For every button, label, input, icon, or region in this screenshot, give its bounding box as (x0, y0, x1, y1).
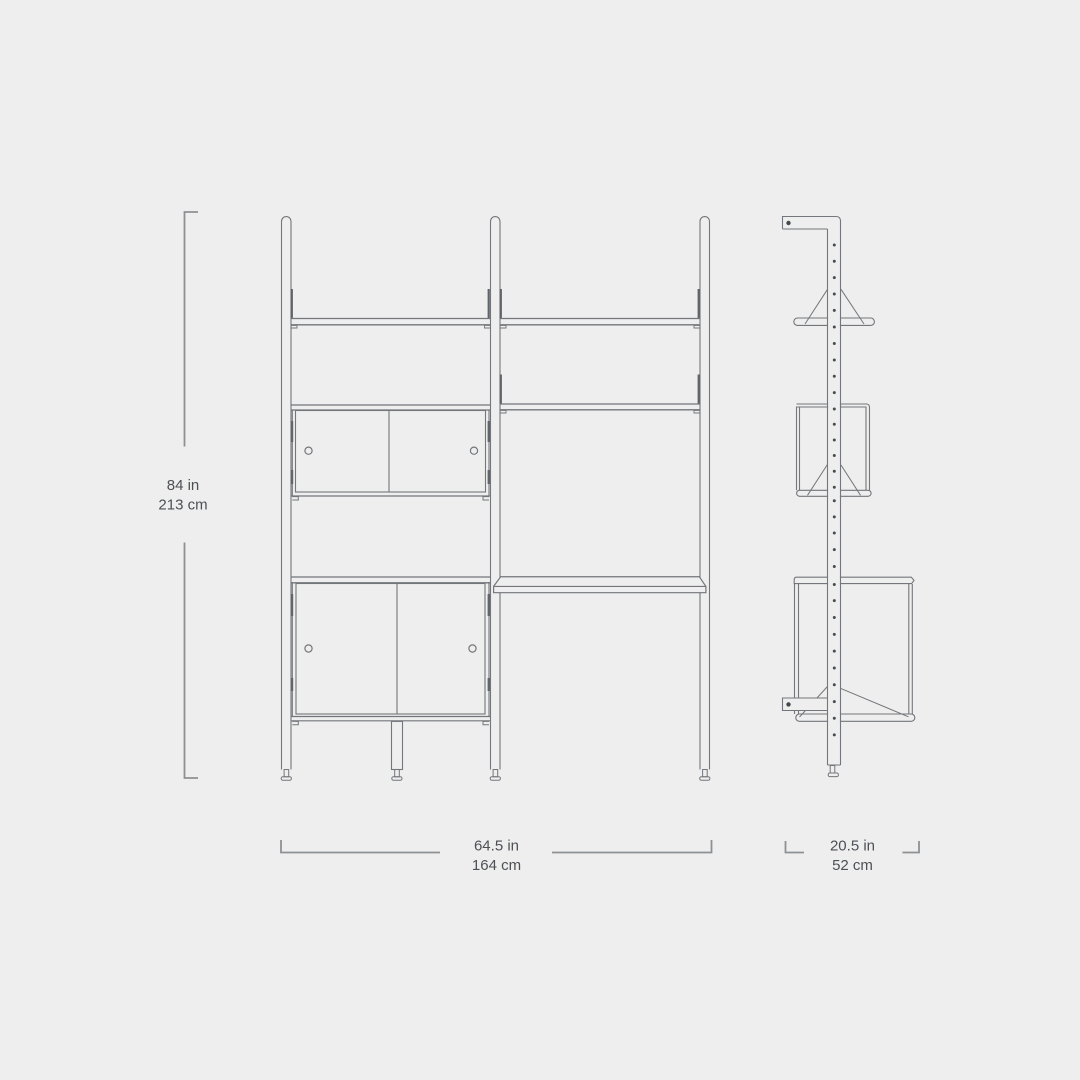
svg-text:20.5 in: 20.5 in (830, 838, 875, 855)
svg-text:52 cm: 52 cm (832, 857, 873, 874)
svg-text:64.5 in: 64.5 in (474, 838, 519, 855)
svg-text:213 cm: 213 cm (158, 497, 207, 514)
svg-text:164 cm: 164 cm (472, 857, 521, 874)
svg-text:84 in: 84 in (167, 477, 200, 494)
